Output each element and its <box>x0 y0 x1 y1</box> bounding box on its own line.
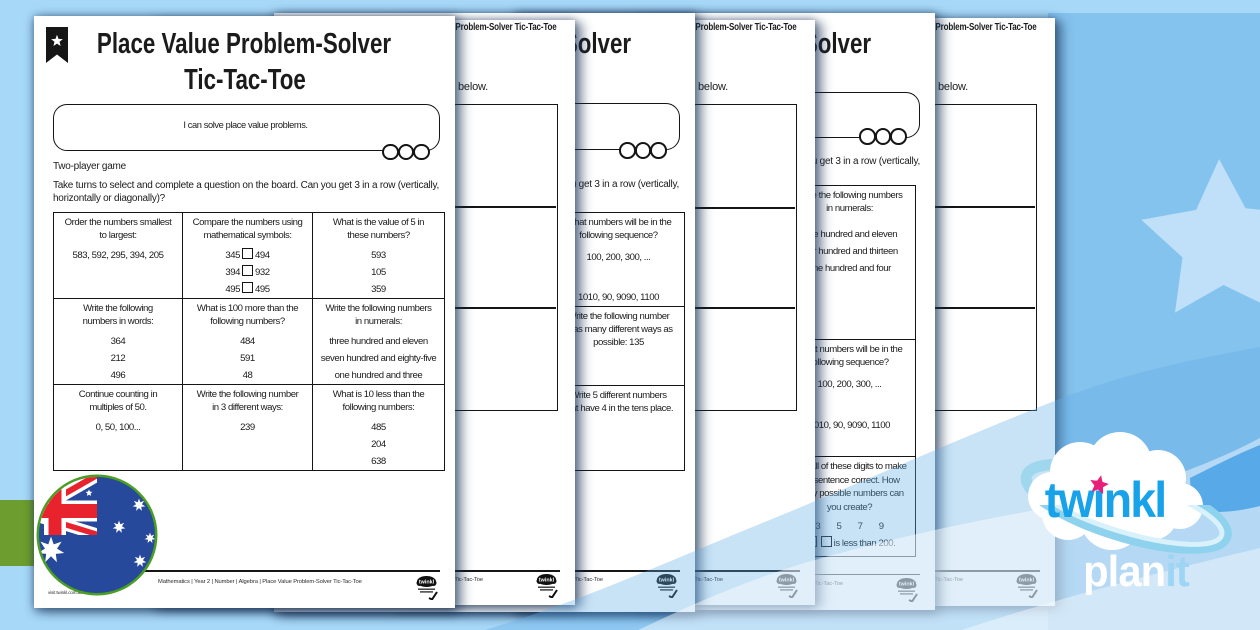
svg-text:twinkl: twinkl <box>539 578 555 584</box>
svg-text:twinkl: twinkl <box>899 582 915 588</box>
svg-text:twinkl: twinkl <box>779 578 795 584</box>
svg-text:planit: planit <box>1083 547 1189 596</box>
svg-text:twinkl: twinkl <box>419 580 435 586</box>
svg-text:twinkl: twinkl <box>1045 472 1166 528</box>
svg-text:twinkl: twinkl <box>659 578 675 584</box>
